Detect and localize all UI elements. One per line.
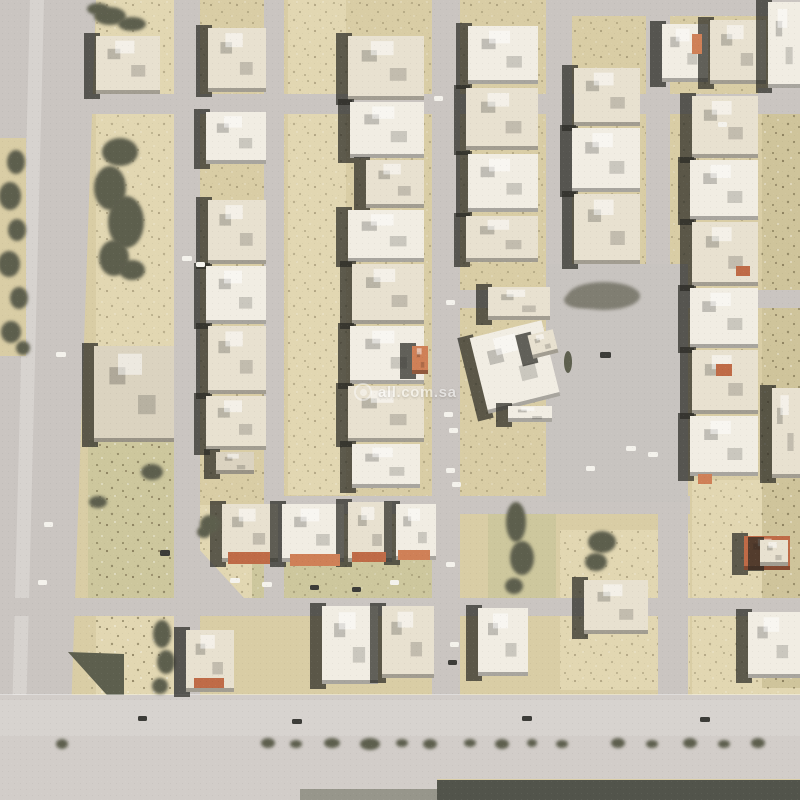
satellite-image: all.com.sa <box>0 0 800 800</box>
grain-segment <box>0 0 800 800</box>
map-canvas <box>0 0 800 800</box>
layer-grain <box>0 0 800 800</box>
